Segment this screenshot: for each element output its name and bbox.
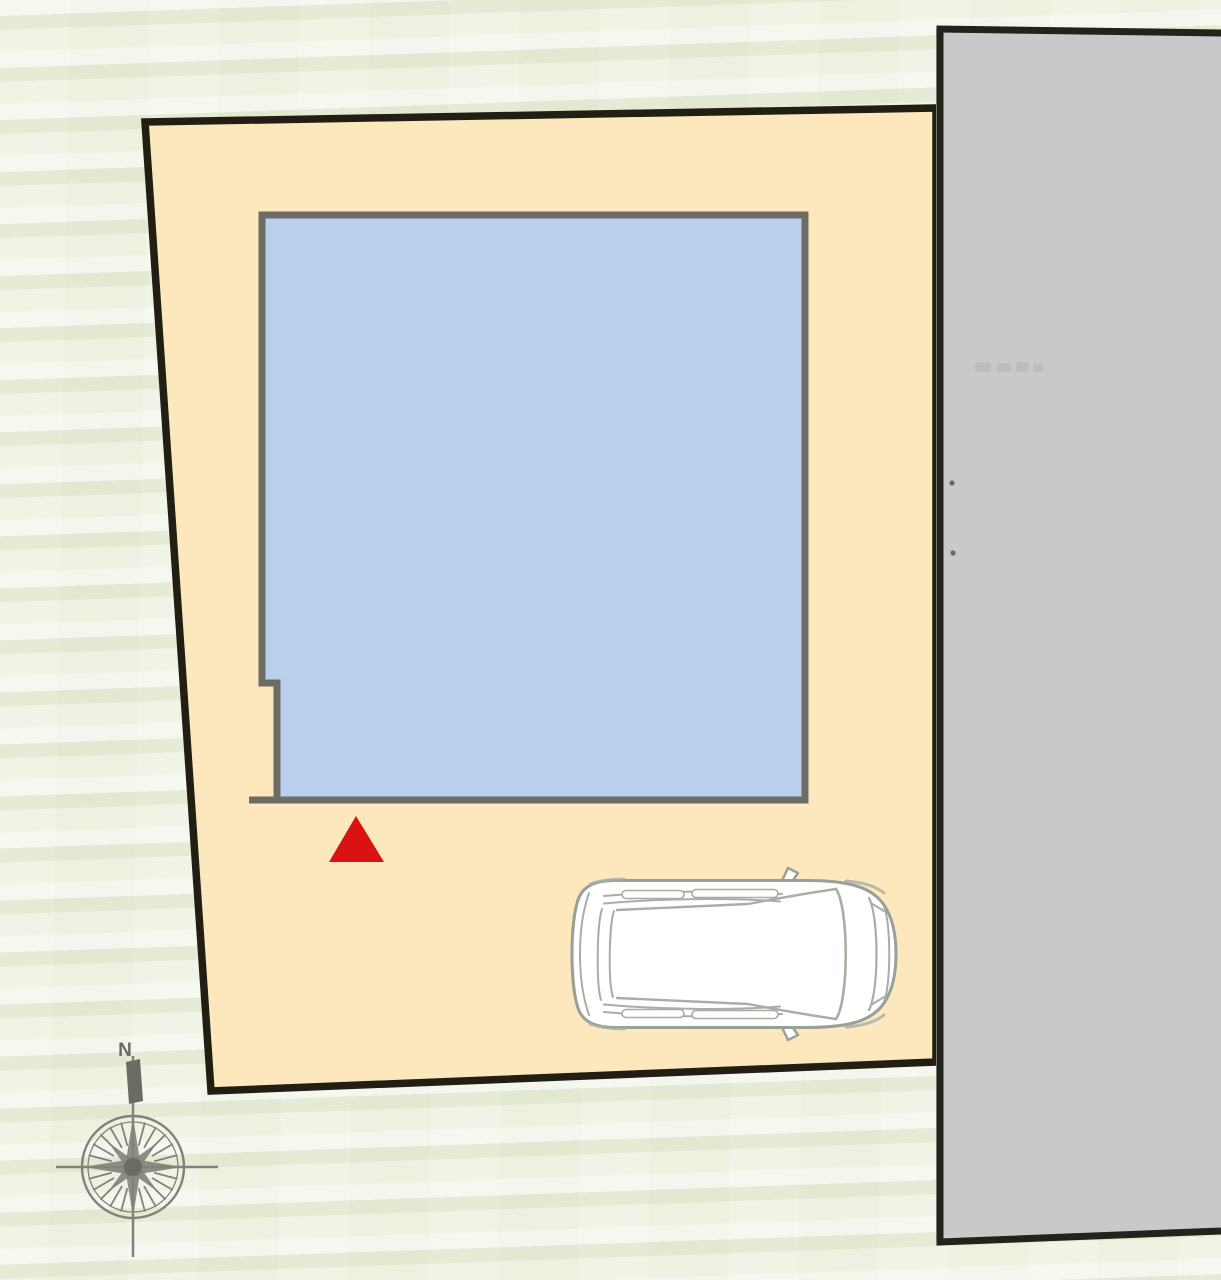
- car-roof-bar: [692, 1011, 778, 1019]
- compass-north-label: N: [118, 1040, 132, 1061]
- site-plan-canvas: N: [0, 0, 1221, 1280]
- compass-spoke: [121, 1123, 127, 1146]
- car-roof-bar: [622, 891, 684, 899]
- road-speck: [949, 480, 954, 485]
- compass-spoke: [139, 1188, 145, 1211]
- site-plan-drawing: N: [0, 0, 1221, 1280]
- compass-spoke: [121, 1188, 127, 1211]
- car-roof-bar: [622, 1010, 684, 1018]
- road-area: [936, 29, 1221, 1242]
- compass-spoke: [154, 1173, 177, 1179]
- compass-spoke: [89, 1173, 112, 1179]
- compass-spoke: [154, 1155, 177, 1161]
- building-footprint: [262, 215, 805, 800]
- car-roof-bar: [692, 890, 778, 898]
- car-top-view-icon: [572, 868, 896, 1040]
- compass-hub: [124, 1158, 142, 1176]
- compass-spoke: [89, 1155, 112, 1161]
- compass-rose-icon: N: [56, 1040, 218, 1257]
- road-speck: [950, 550, 955, 555]
- compass-spoke: [139, 1123, 145, 1146]
- north-needle-icon: [126, 1059, 143, 1104]
